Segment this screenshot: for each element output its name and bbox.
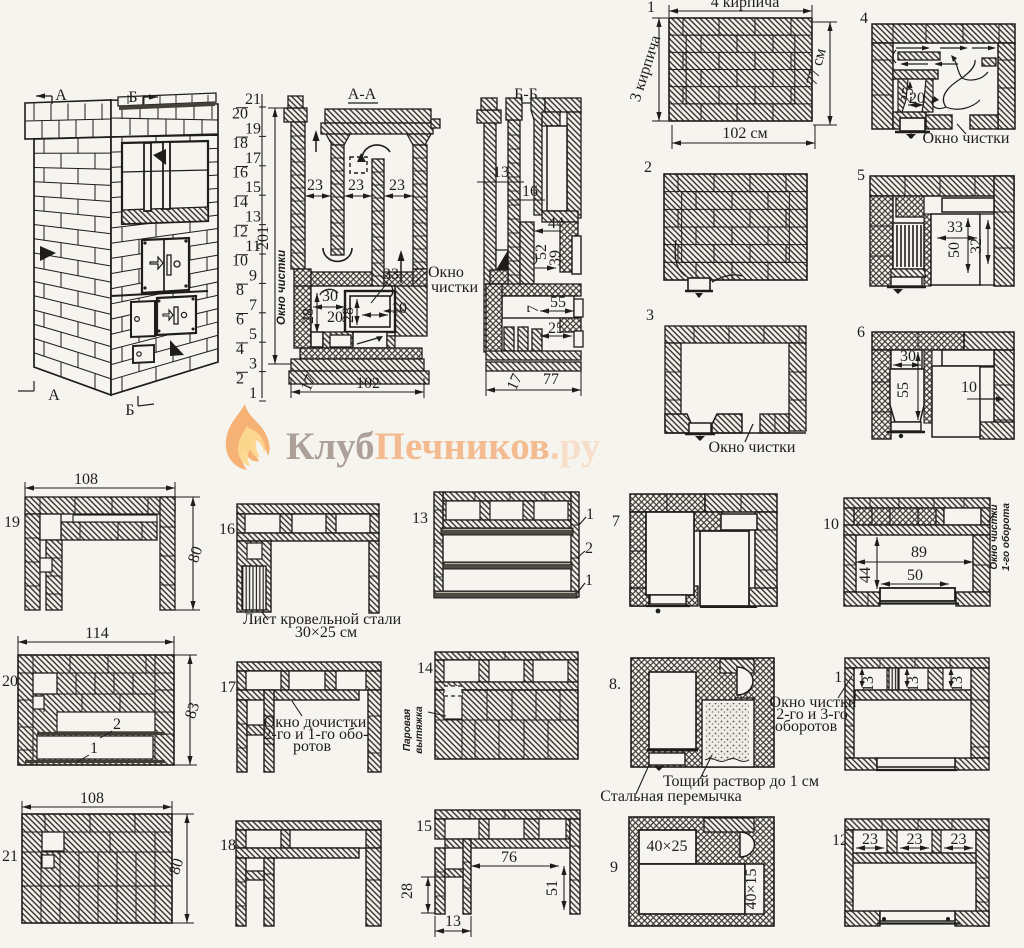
- svg-text:18: 18: [220, 837, 236, 854]
- svg-text:23: 23: [389, 177, 405, 194]
- svg-text:3: 3: [249, 356, 257, 373]
- svg-text:Стальная перемычка: Стальная перемычка: [600, 788, 742, 805]
- svg-text:20: 20: [909, 90, 925, 107]
- svg-text:10: 10: [232, 253, 248, 270]
- svg-text:23: 23: [907, 831, 923, 848]
- svg-text:ротов: ротов: [293, 738, 332, 755]
- svg-text:4: 4: [236, 341, 244, 358]
- svg-text:23: 23: [951, 831, 967, 848]
- svg-text:77: 77: [543, 371, 559, 388]
- svg-text:30×25 см: 30×25 см: [295, 624, 357, 641]
- svg-text:102 см: 102 см: [722, 125, 767, 142]
- svg-text:6: 6: [857, 324, 865, 341]
- svg-text:4 кирпича: 4 кирпича: [711, 0, 780, 11]
- svg-text:40×25: 40×25: [646, 838, 687, 855]
- svg-text:13: 13: [445, 913, 461, 930]
- svg-text:51: 51: [544, 880, 561, 896]
- svg-text:КлубПечников.ру: КлубПечников.ру: [286, 425, 601, 468]
- svg-text:6: 6: [236, 312, 244, 329]
- svg-text:17: 17: [220, 679, 236, 696]
- svg-text:чистки: чистки: [431, 279, 478, 296]
- svg-text:201: 201: [255, 226, 272, 250]
- svg-text:7: 7: [525, 305, 542, 313]
- svg-text:2: 2: [585, 540, 593, 557]
- svg-text:55: 55: [895, 382, 912, 398]
- svg-text:20: 20: [2, 673, 18, 690]
- svg-text:Пароваявытяжка: Пароваявытяжка: [402, 706, 425, 754]
- svg-text:А-А: А-А: [348, 86, 377, 103]
- svg-text:108: 108: [80, 790, 104, 807]
- svg-text:23: 23: [348, 177, 364, 194]
- svg-text:5: 5: [249, 326, 257, 343]
- svg-text:33: 33: [383, 266, 399, 283]
- svg-text:50: 50: [907, 567, 923, 584]
- svg-text:8.: 8.: [609, 676, 621, 693]
- svg-text:55: 55: [550, 294, 566, 311]
- svg-text:7: 7: [612, 513, 620, 530]
- svg-text:10: 10: [823, 516, 839, 533]
- svg-text:8: 8: [236, 282, 244, 299]
- svg-text:10: 10: [961, 379, 977, 396]
- svg-text:15: 15: [416, 818, 432, 835]
- svg-text:1: 1: [585, 572, 593, 589]
- svg-text:44: 44: [857, 567, 874, 583]
- svg-text:40×15: 40×15: [743, 868, 760, 909]
- svg-text:1: 1: [249, 385, 257, 402]
- svg-text:А: А: [55, 87, 67, 104]
- svg-text:9: 9: [610, 859, 618, 876]
- svg-text:3: 3: [646, 307, 654, 324]
- svg-text:108: 108: [74, 471, 98, 488]
- svg-text:32: 32: [968, 238, 985, 254]
- svg-text:13: 13: [412, 510, 428, 527]
- svg-text:28: 28: [399, 883, 416, 899]
- svg-text:14: 14: [417, 660, 433, 677]
- svg-text:28: 28: [340, 307, 357, 323]
- svg-text:9: 9: [249, 267, 257, 284]
- svg-text:4: 4: [860, 10, 868, 27]
- svg-text:5: 5: [857, 167, 865, 184]
- svg-text:16: 16: [522, 183, 538, 200]
- svg-text:10: 10: [391, 300, 407, 317]
- svg-text:16: 16: [219, 521, 235, 538]
- svg-text:7: 7: [249, 297, 257, 314]
- svg-text:Б: Б: [128, 89, 137, 106]
- svg-text:28: 28: [300, 308, 317, 324]
- svg-text:89: 89: [911, 544, 927, 561]
- svg-text:1: 1: [90, 740, 98, 757]
- svg-text:114: 114: [85, 625, 108, 642]
- svg-text:оборотов: оборотов: [775, 718, 838, 735]
- svg-text:1: 1: [647, 0, 655, 16]
- svg-text:2: 2: [644, 159, 652, 176]
- svg-text:23: 23: [862, 831, 878, 848]
- svg-text:23: 23: [307, 177, 323, 194]
- svg-text:102: 102: [356, 375, 380, 392]
- svg-text:Окно чистки: Окно чистки: [276, 250, 288, 325]
- svg-text:50: 50: [946, 242, 963, 258]
- svg-text:Окно чистки: Окно чистки: [709, 439, 796, 456]
- svg-text:1: 1: [586, 506, 594, 523]
- svg-text:13: 13: [493, 164, 509, 181]
- svg-text:30: 30: [900, 348, 916, 365]
- svg-text:21: 21: [2, 848, 18, 865]
- svg-text:33: 33: [947, 219, 963, 236]
- svg-text:76: 76: [501, 849, 517, 866]
- svg-text:2: 2: [113, 716, 121, 733]
- svg-text:Окно чистки1-го оборота: Окно чистки1-го оборота: [989, 503, 1012, 571]
- svg-text:А: А: [48, 387, 60, 404]
- svg-text:Окно чистки: Окно чистки: [923, 130, 1010, 147]
- svg-text:Б: Б: [125, 402, 134, 419]
- svg-text:19: 19: [4, 514, 20, 531]
- svg-text:2: 2: [236, 370, 244, 387]
